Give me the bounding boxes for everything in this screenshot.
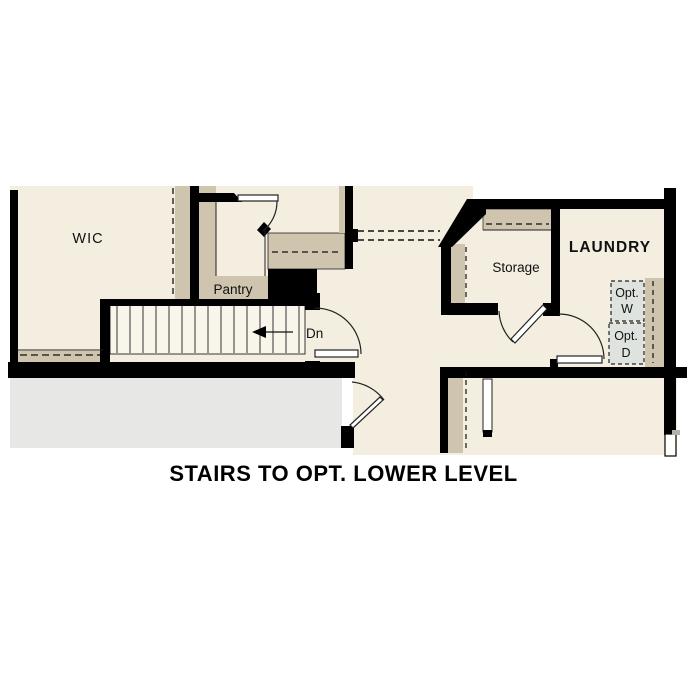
unfinished-slab bbox=[10, 378, 342, 448]
plan-caption: STAIRS TO OPT. LOWER LEVEL bbox=[0, 461, 687, 487]
laundry-door-leaf bbox=[557, 356, 602, 363]
wall-bottom-left bbox=[8, 362, 355, 378]
storage-counter bbox=[483, 209, 552, 230]
laundry-side-strip bbox=[645, 278, 664, 367]
pantry-label: Pantry bbox=[213, 282, 252, 297]
stair-door-leaf bbox=[315, 350, 358, 357]
wall-top bbox=[467, 199, 665, 209]
floor-plan: Opt. W Opt. D Dn WIC Pantry Storage LAUN… bbox=[0, 0, 687, 687]
wall-opening-stub bbox=[350, 229, 358, 242]
wic-wall-strip bbox=[175, 186, 191, 300]
kitchen-counter bbox=[268, 233, 345, 269]
storage-label: Storage bbox=[492, 260, 539, 275]
wall-lower-middle bbox=[440, 367, 448, 453]
wall-left bbox=[10, 190, 18, 375]
wall-below-counter bbox=[268, 269, 317, 306]
wall-lower-door-stub-top bbox=[341, 363, 354, 378]
lower-opening-tick bbox=[483, 430, 492, 437]
right-edge-jamb bbox=[665, 434, 676, 456]
counter-top-strip bbox=[339, 186, 346, 233]
wall-stair-door-stub-bottom bbox=[305, 361, 320, 373]
wall-bottom-right bbox=[441, 367, 687, 378]
opt-washer-label-2: W bbox=[621, 302, 633, 316]
opt-dryer-label-2: D bbox=[621, 346, 630, 360]
wall-pantry-left bbox=[190, 186, 199, 300]
wall-counter-cap bbox=[345, 186, 353, 269]
lower-side-strip bbox=[448, 367, 463, 453]
wall-pantry-top bbox=[195, 193, 242, 202]
floor-plan-canvas: Opt. W Opt. D Dn WIC Pantry Storage LAUN… bbox=[0, 0, 687, 687]
stair-direction-label: Dn bbox=[306, 326, 323, 341]
lower-opening-jamb bbox=[483, 379, 492, 432]
pantry-door-leaf bbox=[238, 195, 278, 201]
wall-lower-door-stub-bottom bbox=[341, 426, 354, 448]
wall-right bbox=[664, 188, 676, 435]
wall-laundry-left bbox=[551, 199, 560, 316]
wic-label: WIC bbox=[72, 231, 103, 247]
opt-washer-label-1: Opt. bbox=[615, 286, 639, 300]
wall-stair-left bbox=[100, 300, 110, 375]
storage-side-strip bbox=[451, 244, 465, 303]
laundry-label: LAUNDRY bbox=[569, 239, 651, 256]
right-edge-tick bbox=[672, 430, 680, 435]
lower-room-floor bbox=[443, 378, 677, 455]
wall-storage-bottom bbox=[441, 303, 498, 315]
opt-dryer-label-1: Opt. bbox=[614, 329, 638, 343]
